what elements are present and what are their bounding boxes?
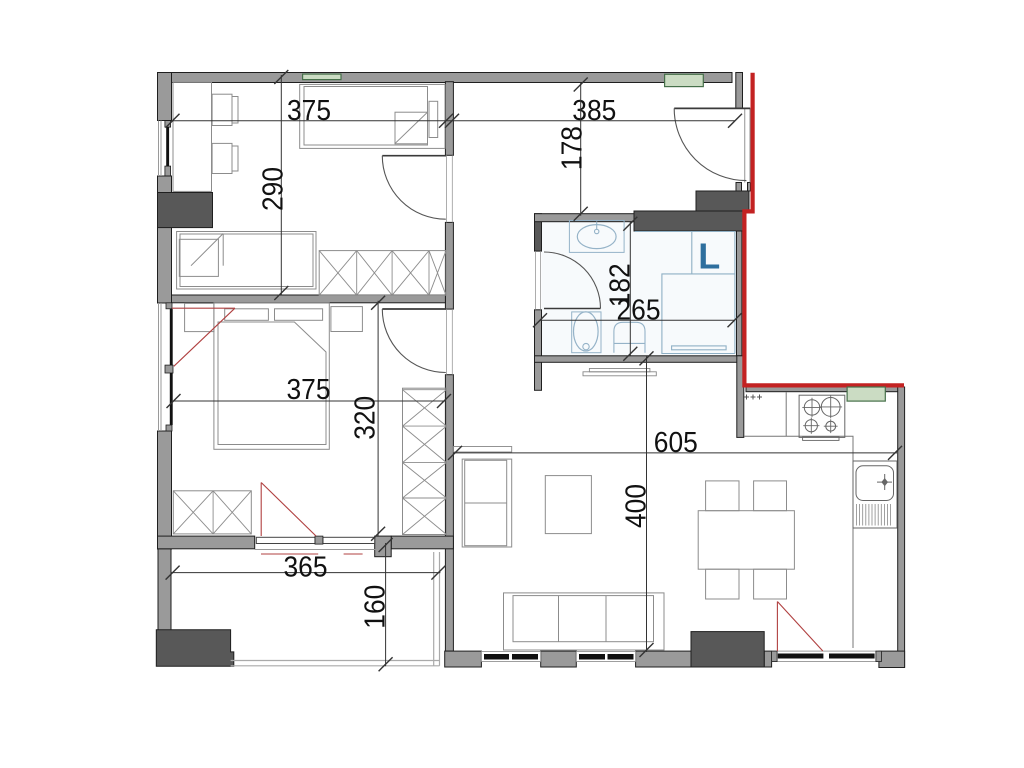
svg-text:L: L	[698, 236, 720, 277]
svg-text:400: 400	[621, 484, 653, 528]
svg-text:290: 290	[258, 167, 290, 211]
svg-text:320: 320	[350, 396, 382, 440]
svg-text:365: 365	[284, 552, 328, 584]
svg-text:265: 265	[617, 295, 661, 327]
svg-text:160: 160	[360, 585, 392, 629]
svg-text:375: 375	[287, 95, 331, 127]
svg-text:605: 605	[654, 427, 698, 459]
svg-text:385: 385	[572, 95, 616, 127]
svg-text:178: 178	[557, 126, 589, 170]
svg-text:375: 375	[287, 374, 331, 406]
